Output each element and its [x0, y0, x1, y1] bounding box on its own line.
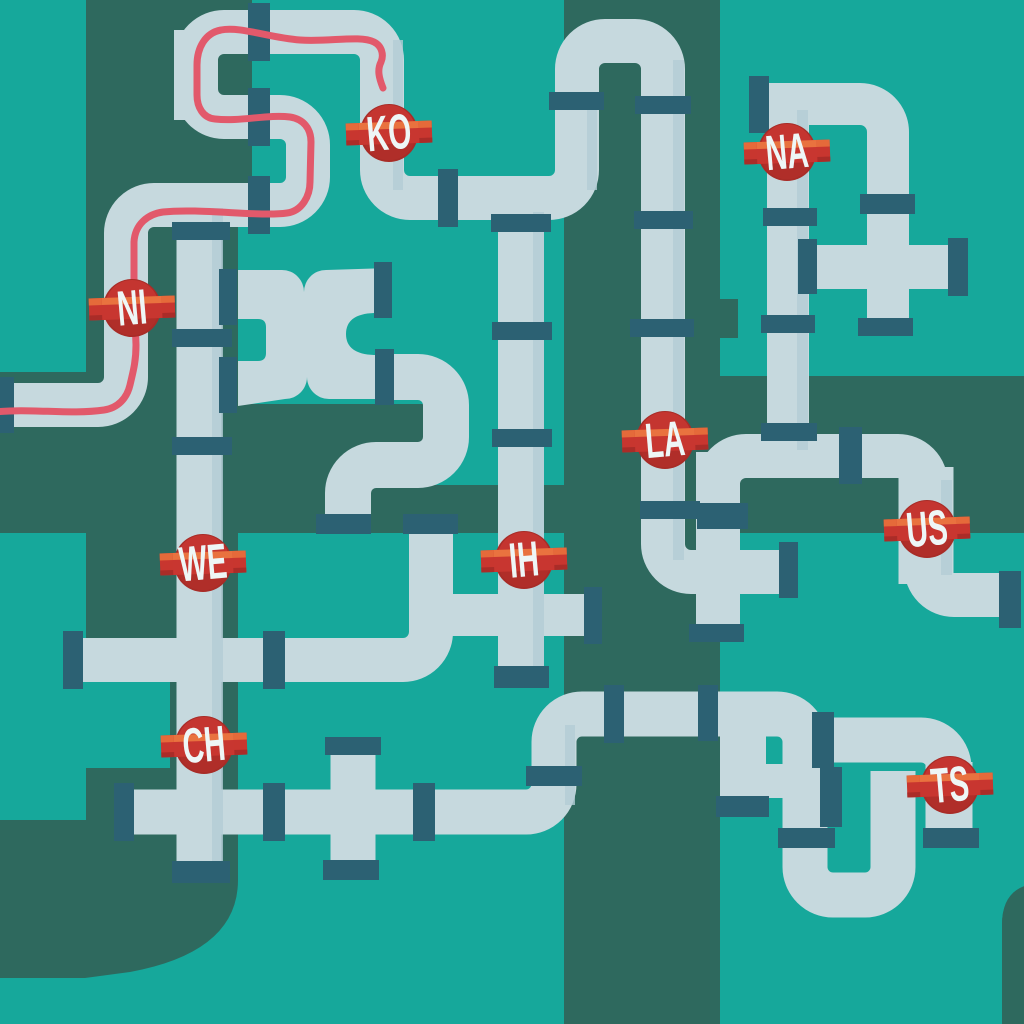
- svg-text:WE: WE: [177, 533, 229, 593]
- svg-text:US: US: [904, 499, 950, 558]
- svg-text:NI: NI: [115, 278, 149, 336]
- svg-text:LA: LA: [643, 410, 687, 469]
- svg-text:NA: NA: [763, 122, 811, 181]
- svg-text:CH: CH: [180, 715, 228, 774]
- svg-text:KO: KO: [364, 103, 413, 162]
- svg-text:TS: TS: [929, 755, 972, 814]
- svg-text:IH: IH: [507, 530, 541, 588]
